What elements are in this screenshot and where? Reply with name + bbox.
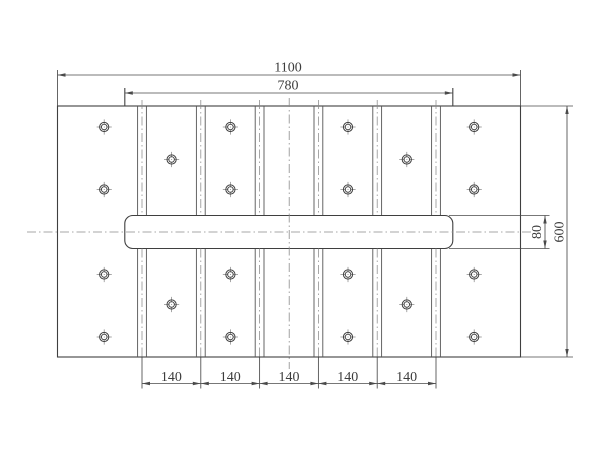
- dimension-arrowhead: [543, 216, 546, 224]
- dim-label-overall-width: 1100: [274, 61, 301, 76]
- dimension-arrowhead: [565, 349, 568, 357]
- dim-label-overall-height: 600: [553, 222, 568, 243]
- dimension-arrowhead: [260, 382, 268, 385]
- dim-label-pitch-1: 140: [161, 370, 182, 385]
- dim-label-pitch-4: 140: [337, 370, 358, 385]
- dimension-arrowhead: [252, 382, 260, 385]
- dim-label-pitch-5: 140: [396, 370, 417, 385]
- dimension-arrowhead: [428, 382, 436, 385]
- dimension-arrowhead: [193, 382, 201, 385]
- dimension-arrowhead: [445, 91, 453, 94]
- dimension-arrowhead: [377, 382, 385, 385]
- dimension-arrowhead: [201, 382, 209, 385]
- dimension-arrowhead: [58, 73, 66, 76]
- center-bar: [125, 216, 453, 249]
- dimension-arrowhead: [513, 73, 521, 76]
- dimension-arrowhead: [125, 91, 133, 94]
- dimension-arrowhead: [543, 241, 546, 249]
- dimension-arrowhead: [318, 382, 326, 385]
- technical-drawing-page: 1100 780 600 80 140140140140140: [0, 0, 600, 450]
- dim-label-bar-height: 80: [530, 225, 545, 239]
- dimension-arrowhead: [565, 106, 568, 114]
- dimension-arrowhead: [310, 382, 318, 385]
- plate-drawing-svg: 1100 780 600 80 140140140140140: [0, 0, 600, 450]
- dim-label-inner-width: 780: [278, 79, 299, 94]
- dimension-arrowhead: [369, 382, 377, 385]
- dimension-arrowhead: [142, 382, 150, 385]
- dim-label-pitch-2: 140: [220, 370, 241, 385]
- dim-label-pitch-3: 140: [279, 370, 300, 385]
